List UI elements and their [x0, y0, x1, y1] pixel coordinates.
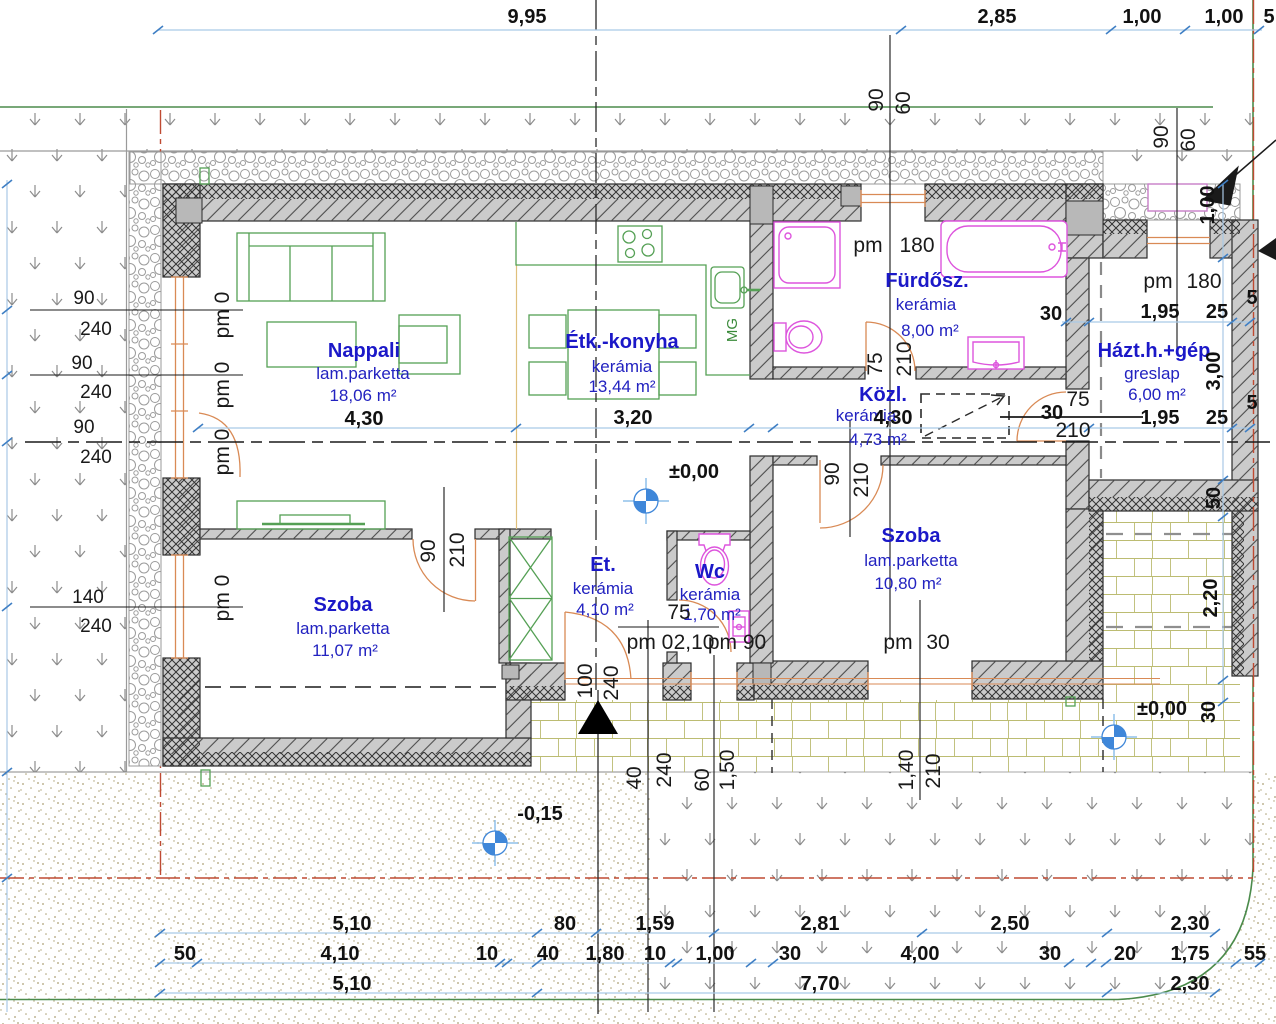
svg-text:kerámia: kerámia	[573, 579, 634, 598]
svg-text:25: 25	[1206, 407, 1228, 429]
svg-text:90: 90	[417, 539, 440, 562]
svg-text:pm: pm	[1143, 270, 1172, 293]
svg-text:75: 75	[667, 601, 690, 624]
svg-text:4,10: 4,10	[321, 943, 360, 965]
svg-text:100: 100	[574, 663, 597, 698]
svg-text:60: 60	[1177, 128, 1200, 151]
svg-text:1,40: 1,40	[895, 750, 918, 791]
svg-text:60: 60	[691, 768, 714, 791]
svg-text:±0,00: ±0,00	[1137, 698, 1187, 720]
svg-text:4,00: 4,00	[901, 943, 940, 965]
svg-text:55: 55	[1244, 943, 1266, 965]
svg-text:pm: pm	[883, 631, 912, 654]
svg-text:±0,00: ±0,00	[669, 461, 719, 483]
svg-text:kerámia: kerámia	[896, 295, 957, 314]
svg-text:Nappali: Nappali	[328, 340, 400, 362]
svg-text:30: 30	[1039, 943, 1061, 965]
svg-text:240: 240	[80, 382, 112, 403]
svg-text:greslap: greslap	[1124, 364, 1180, 383]
svg-text:90: 90	[865, 88, 888, 111]
svg-text:pm 0: pm 0	[211, 429, 234, 476]
svg-text:5: 5	[1263, 6, 1274, 28]
svg-text:pm 0: pm 0	[211, 362, 234, 409]
svg-text:pm 0: pm 0	[211, 292, 234, 339]
svg-text:Szoba: Szoba	[314, 594, 374, 616]
svg-text:240: 240	[80, 319, 112, 340]
svg-text:MG: MG	[724, 318, 741, 342]
svg-text:10,80 m²: 10,80 m²	[874, 574, 941, 593]
svg-text:210: 210	[446, 532, 469, 567]
svg-text:18,06 m²: 18,06 m²	[329, 386, 396, 405]
svg-text:210: 210	[850, 462, 873, 497]
svg-text:1,59: 1,59	[636, 913, 675, 935]
svg-text:pm 0: pm 0	[627, 631, 674, 654]
svg-text:20: 20	[1114, 943, 1136, 965]
svg-text:2,85: 2,85	[978, 6, 1017, 28]
svg-text:Étk.-konyha: Étk.-konyha	[565, 330, 679, 353]
svg-text:80: 80	[554, 913, 576, 935]
svg-text:1,50: 1,50	[716, 750, 739, 791]
svg-text:5: 5	[1246, 287, 1257, 309]
svg-text:4,10 m²: 4,10 m²	[576, 600, 634, 619]
svg-text:9,95: 9,95	[508, 6, 547, 28]
svg-text:75: 75	[1066, 388, 1089, 411]
svg-text:30: 30	[779, 943, 801, 965]
svg-text:180: 180	[899, 234, 934, 257]
svg-text:60: 60	[892, 91, 915, 114]
svg-text:4,30: 4,30	[874, 407, 913, 429]
svg-text:kerámia: kerámia	[592, 357, 653, 376]
svg-text:210: 210	[922, 753, 945, 788]
svg-text:210: 210	[893, 341, 916, 376]
svg-text:5,10: 5,10	[333, 913, 372, 935]
svg-text:3,00: 3,00	[1203, 352, 1225, 391]
svg-text:2,50: 2,50	[991, 913, 1030, 935]
svg-text:180: 180	[1186, 270, 1221, 293]
svg-text:1,75: 1,75	[1171, 943, 1210, 965]
svg-text:40: 40	[623, 766, 646, 789]
svg-text:1,70 m²: 1,70 m²	[683, 605, 741, 624]
svg-text:pm 90: pm 90	[708, 631, 766, 654]
svg-text:90: 90	[73, 288, 94, 309]
svg-text:1,00: 1,00	[1123, 6, 1162, 28]
svg-text:-0,15: -0,15	[517, 803, 563, 825]
svg-text:240: 240	[80, 447, 112, 468]
svg-text:pm 0: pm 0	[211, 575, 234, 622]
svg-text:pm: pm	[853, 234, 882, 257]
svg-text:1,95: 1,95	[1141, 301, 1180, 323]
svg-text:90: 90	[71, 353, 92, 374]
svg-text:240: 240	[653, 752, 676, 787]
svg-text:lam.parketta: lam.parketta	[296, 619, 390, 638]
svg-text:lam.parketta: lam.parketta	[864, 551, 958, 570]
svg-text:5,10: 5,10	[333, 973, 372, 995]
svg-text:2,30: 2,30	[1171, 913, 1210, 935]
svg-text:50: 50	[174, 943, 196, 965]
svg-text:1,80: 1,80	[586, 943, 625, 965]
svg-text:1,95: 1,95	[1141, 407, 1180, 429]
svg-text:Fürdősz.: Fürdősz.	[885, 270, 968, 292]
svg-text:30: 30	[926, 631, 949, 654]
svg-text:40: 40	[537, 943, 559, 965]
svg-text:7,70: 7,70	[801, 973, 840, 995]
svg-text:Szoba: Szoba	[882, 525, 942, 547]
svg-text:1,00: 1,00	[1197, 186, 1219, 225]
svg-text:10: 10	[476, 943, 498, 965]
svg-text:4,73 m²: 4,73 m²	[849, 430, 907, 449]
svg-text:140: 140	[72, 587, 104, 608]
svg-text:8,00 m²: 8,00 m²	[901, 321, 959, 340]
svg-text:lam.parketta: lam.parketta	[316, 364, 410, 383]
svg-text:1,00: 1,00	[1205, 6, 1244, 28]
svg-text:2,20: 2,20	[1200, 579, 1222, 618]
svg-text:30: 30	[1040, 303, 1062, 325]
svg-text:2,81: 2,81	[801, 913, 840, 935]
svg-text:75: 75	[864, 352, 887, 375]
svg-text:11,07 m²: 11,07 m²	[312, 641, 378, 660]
svg-text:Wc: Wc	[695, 561, 725, 583]
svg-text:13,44 m²: 13,44 m²	[588, 377, 655, 396]
svg-text:30: 30	[1198, 701, 1220, 723]
svg-text:90: 90	[73, 417, 94, 438]
svg-text:10: 10	[644, 943, 666, 965]
svg-text:4,30: 4,30	[345, 408, 384, 430]
svg-text:90: 90	[1150, 125, 1173, 148]
svg-text:2,30: 2,30	[1171, 973, 1210, 995]
svg-text:6,00 m²: 6,00 m²	[1128, 385, 1186, 404]
svg-text:Et.: Et.	[590, 554, 616, 576]
svg-text:90: 90	[821, 462, 844, 485]
svg-text:240: 240	[80, 616, 112, 637]
svg-text:240: 240	[600, 665, 623, 700]
svg-text:50: 50	[1203, 487, 1225, 509]
svg-text:Közl.: Közl.	[859, 384, 907, 406]
svg-text:3,20: 3,20	[614, 407, 653, 429]
svg-text:5: 5	[1246, 392, 1257, 414]
svg-text:210: 210	[1055, 419, 1090, 442]
svg-text:Házt.h.+gép: Házt.h.+gép	[1098, 340, 1211, 362]
svg-text:1,00: 1,00	[696, 943, 735, 965]
svg-text:25: 25	[1206, 301, 1228, 323]
